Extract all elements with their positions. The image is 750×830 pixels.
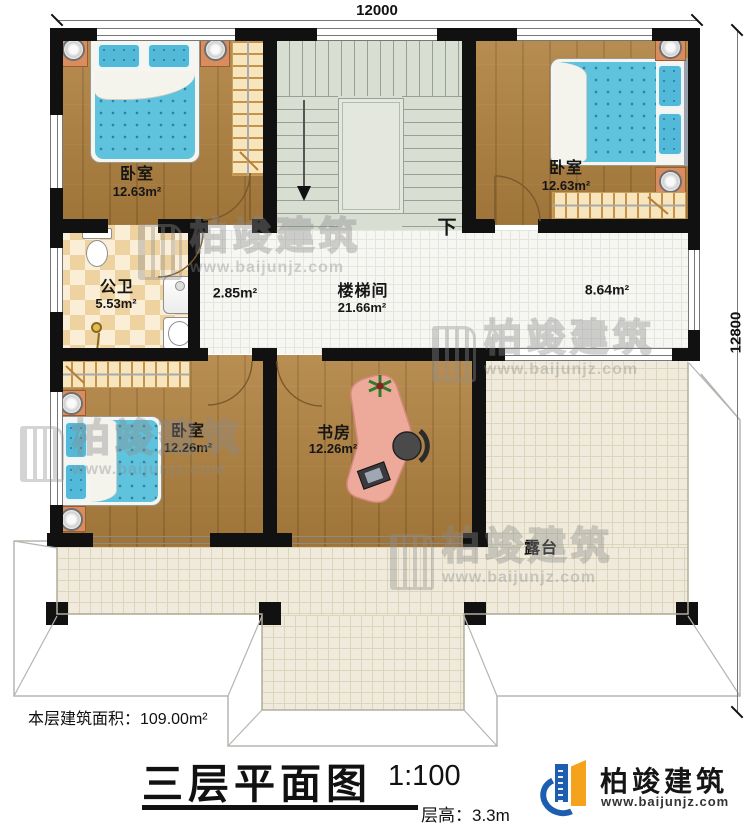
logo-building-orange	[571, 760, 586, 806]
room-label-bathroom: 公卫	[100, 279, 134, 297]
window	[317, 28, 437, 41]
wall	[322, 348, 490, 361]
wall	[200, 348, 208, 361]
floor-height-text: 层高：3.3m	[421, 801, 510, 826]
wall	[476, 219, 495, 233]
room-label-bedroom-bl: 卧室	[171, 423, 205, 441]
room-label-stairwell: 楼梯间	[337, 283, 388, 301]
window	[50, 392, 63, 505]
room-area-corridor: 8.64m²	[585, 282, 629, 297]
dimension-line-right	[737, 30, 738, 712]
lamp-icon	[62, 38, 85, 61]
room-label-bedroom-tl: 卧室	[120, 166, 154, 184]
dimension-right-value: 12800	[728, 303, 745, 363]
pillow	[657, 112, 683, 156]
pillow	[64, 463, 88, 501]
wall	[210, 533, 292, 547]
wall	[50, 219, 108, 233]
bed-sheet	[90, 420, 117, 502]
stair-direction-label: 下	[437, 219, 456, 240]
wall	[263, 28, 277, 233]
nightstand	[655, 167, 686, 195]
brand-url: www.baijunjz.com	[601, 794, 729, 809]
floor-window	[93, 536, 210, 544]
floor-area-text: 本层建筑面积：109.00m²	[28, 705, 208, 729]
bed-sheet	[554, 62, 587, 162]
room-area-bedroom-tr: 12.63m²	[542, 179, 590, 193]
window	[50, 248, 63, 312]
wall	[158, 219, 208, 233]
closet	[232, 36, 264, 176]
window	[97, 28, 235, 41]
brand-logo-icon	[540, 760, 596, 818]
pillow	[64, 421, 88, 459]
stair-treads-right	[402, 96, 462, 230]
wall	[263, 348, 277, 547]
wardrobe	[552, 192, 686, 219]
brand-logo: 柏竣建筑 www.baijunjz.com	[540, 758, 740, 820]
room-label-bedroom-tr: 卧室	[549, 160, 583, 178]
wall	[50, 188, 63, 248]
terrace-floor-bottom	[57, 547, 688, 615]
stair-treads-left	[276, 96, 338, 230]
wall	[437, 28, 517, 41]
lamp-icon	[204, 38, 227, 61]
title-underline	[142, 805, 418, 810]
stair-void	[338, 98, 404, 214]
lamp-icon	[659, 170, 682, 193]
dimension-top-value: 12000	[340, 2, 414, 19]
wall	[188, 219, 200, 361]
wall	[490, 348, 505, 361]
terrace-column	[46, 602, 68, 625]
wall	[47, 533, 93, 547]
wall	[50, 348, 200, 361]
terrace-floor-protrusion	[262, 615, 464, 710]
wall	[538, 219, 700, 233]
plan-title: 三层平面图	[142, 750, 372, 810]
window	[50, 115, 63, 188]
wall	[472, 348, 486, 547]
room-area-bedroom-bl: 12.26m²	[164, 441, 212, 455]
logo-building-blue	[555, 764, 568, 802]
pillow	[97, 43, 141, 69]
room-area-bedroom-tl: 12.63m²	[113, 185, 161, 199]
stair-down-arrow-icon	[297, 186, 311, 201]
floor-window	[292, 536, 463, 544]
plan-scale: 1:100	[388, 760, 461, 793]
wall	[50, 28, 63, 115]
wall	[252, 219, 263, 233]
window	[688, 250, 700, 330]
room-area-hall: 2.85m²	[213, 285, 257, 300]
floor-drain-icon	[91, 322, 102, 333]
pillow	[147, 43, 191, 69]
room-area-bathroom: 5.53m²	[95, 297, 136, 311]
wall	[462, 28, 476, 233]
wall	[688, 330, 700, 361]
dimension-line-top	[57, 20, 697, 21]
wardrobe	[58, 361, 190, 388]
room-area-study: 12.26m²	[309, 442, 357, 456]
terrace-column	[259, 602, 281, 625]
terrace-column	[464, 602, 486, 625]
window	[505, 348, 672, 361]
shower-knob-icon	[175, 281, 185, 291]
study-floor	[270, 355, 480, 547]
toilet-bowl	[86, 240, 108, 267]
floor-plan-canvas: 卧室 12.63m² 卧室 12.63m² 公卫 5.53m² 2.85m² 楼…	[0, 0, 750, 830]
pillow	[657, 64, 683, 108]
stair-treads-top	[276, 36, 462, 96]
stair-walk-line	[303, 100, 305, 186]
window	[517, 28, 652, 41]
wall	[463, 533, 488, 547]
room-label-terrace: 露台	[524, 540, 558, 558]
terrace-column	[676, 602, 698, 625]
room-area-stairwell: 21.66m²	[338, 301, 386, 315]
wall	[688, 28, 700, 250]
